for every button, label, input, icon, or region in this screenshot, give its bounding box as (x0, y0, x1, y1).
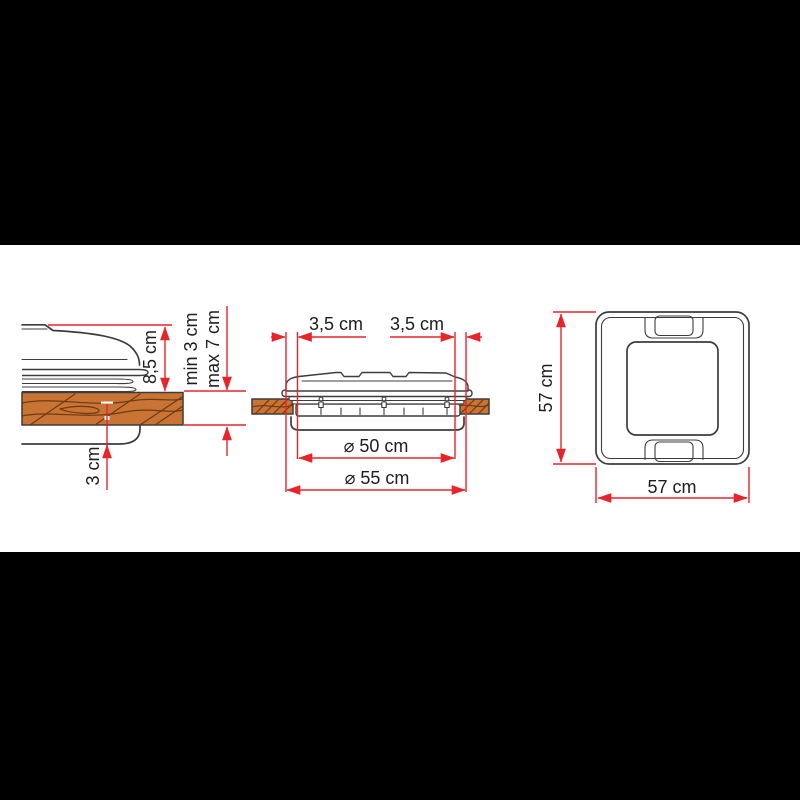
dim-label-top-view-width: 57 cm (647, 477, 696, 497)
side-view-roof-wood (22, 393, 183, 426)
dim-label-inner-frame-depth: 3 cm (83, 446, 103, 485)
dim-label-flange-left: 3,5 cm (309, 314, 363, 334)
dim-label-roof-thickness-min: min 3 cm (181, 312, 201, 385)
dim-label-flange-right: 3,5 cm (390, 314, 444, 334)
section-roof-wood-left (252, 399, 293, 414)
roof-vent-dimension-diagram: 8,5 cm min 3 cm max 7 cm 3 cm 3,5 cm 3,5… (0, 0, 800, 800)
leader-reference-tick (101, 402, 113, 404)
section-seals (289, 397, 467, 404)
dim-label-overall-width: ⌀ 55 cm (345, 468, 410, 488)
dim-label-roof-thickness-max: max 7 cm (203, 310, 223, 388)
dim-label-cutout-width: ⌀ 50 cm (344, 436, 409, 456)
section-vent-lid (282, 373, 472, 397)
dim-label-top-view-height: 57 cm (536, 363, 556, 412)
dim-label-lid-height: 8,5 cm (140, 330, 160, 384)
